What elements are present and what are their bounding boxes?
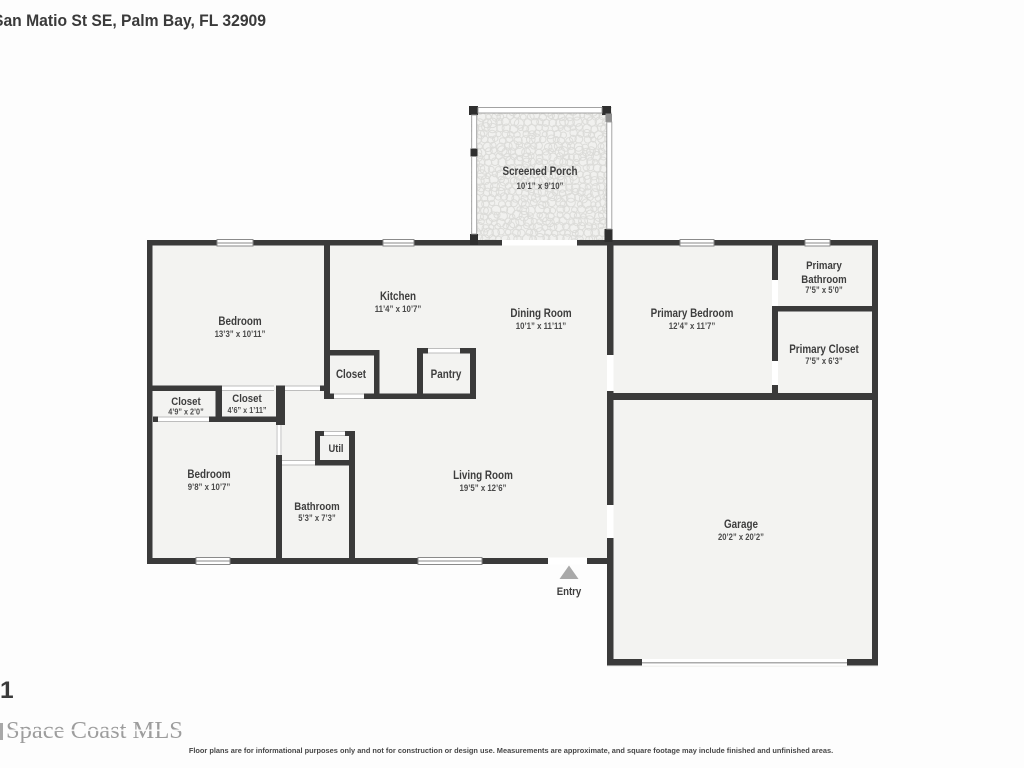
svg-text:Pantry: Pantry <box>431 368 462 381</box>
svg-text:Closet: Closet <box>336 368 366 381</box>
svg-text:4’6” x 1’11”: 4’6” x 1’11” <box>228 405 267 415</box>
svg-text:20’2” x 20’2”: 20’2” x 20’2” <box>718 532 764 542</box>
svg-text:4’9” x 2’0”: 4’9” x 2’0” <box>168 407 203 417</box>
svg-text:Closet: Closet <box>232 393 262 405</box>
svg-text:Primary: Primary <box>806 260 842 272</box>
svg-text:Screened Porch: Screened Porch <box>503 165 578 178</box>
svg-text:Bedroom: Bedroom <box>218 315 261 328</box>
svg-text:Bathroom: Bathroom <box>294 501 339 513</box>
svg-text:7’5” x 6’3”: 7’5” x 6’3” <box>805 356 842 366</box>
svg-text:10’1” x 9’10”: 10’1” x 9’10” <box>517 181 564 191</box>
svg-text:1: 1 <box>0 677 14 704</box>
svg-text:Garage: Garage <box>724 518 758 531</box>
svg-text:Dining Room: Dining Room <box>510 307 571 320</box>
svg-text:Living Room: Living Room <box>453 469 513 482</box>
svg-text:Primary Closet: Primary Closet <box>789 343 859 356</box>
svg-text:5’3” x 7’3”: 5’3” x 7’3” <box>298 513 335 523</box>
svg-text:Kitchen: Kitchen <box>380 290 416 303</box>
svg-text:11’4” x 10’7”: 11’4” x 10’7” <box>375 304 422 314</box>
svg-text:Util: Util <box>328 443 343 455</box>
svg-text:9’8” x 10’7”: 9’8” x 10’7” <box>188 482 231 492</box>
svg-text:19’5” x 12’6”: 19’5” x 12’6” <box>460 483 507 493</box>
svg-text:Primary Bedroom: Primary Bedroom <box>651 307 734 320</box>
svg-text:12’4” x 11’7”: 12’4” x 11’7” <box>669 321 716 331</box>
svg-text:Bedroom: Bedroom <box>187 468 230 481</box>
svg-text:7’5” x 5’0”: 7’5” x 5’0” <box>805 285 842 295</box>
svg-text:Entry: Entry <box>557 586 582 598</box>
svg-text:13’3” x 10’11”: 13’3” x 10’11” <box>215 329 266 339</box>
svg-text:San Matio St SE, Palm Bay, FL: San Matio St SE, Palm Bay, FL 32909 <box>0 12 266 30</box>
svg-text:10’1” x 11’11”: 10’1” x 11’11” <box>516 321 566 331</box>
svg-text:Floor plans are for informatio: Floor plans are for informational purpos… <box>189 746 833 755</box>
